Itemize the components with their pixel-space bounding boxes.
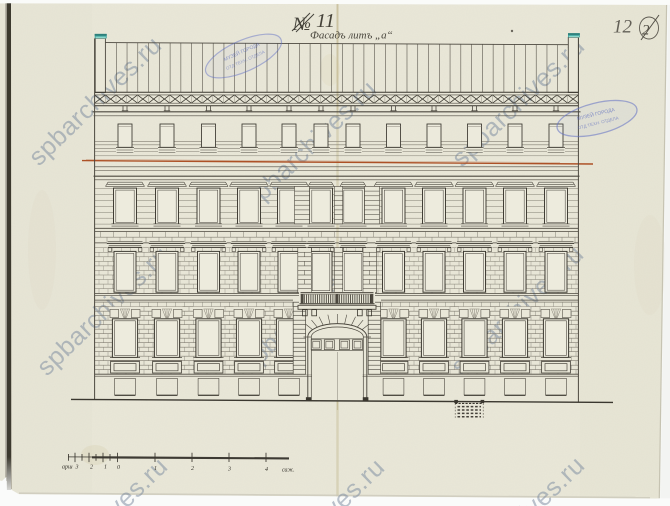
svg-text:2: 2 — [191, 466, 194, 472]
svg-text:арш: арш — [62, 464, 73, 470]
svg-text:саж.: саж. — [282, 467, 295, 473]
svg-text:2: 2 — [90, 465, 93, 471]
svg-text:0: 0 — [117, 465, 120, 471]
svg-text:1: 1 — [154, 466, 157, 472]
svg-text:№: № — [292, 14, 311, 35]
svg-text:3: 3 — [227, 467, 231, 473]
svg-text:Фасадъ литъ „а“: Фасадъ литъ „а“ — [310, 30, 393, 42]
svg-text:4: 4 — [265, 466, 268, 473]
svg-text:3: 3 — [75, 464, 79, 470]
svg-text:12: 12 — [613, 17, 633, 38]
svg-text:1: 1 — [104, 465, 107, 471]
